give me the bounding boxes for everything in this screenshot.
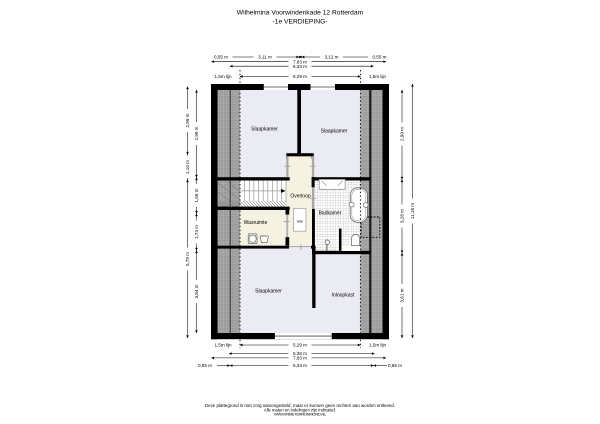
svg-text:1,58 m: 1,58 m <box>194 188 199 202</box>
svg-text:6,33 m: 6,33 m <box>293 363 307 368</box>
svg-text:WWW.INMETERRIJNMOND.NL: WWW.INMETERRIJNMOND.NL <box>274 412 327 417</box>
svg-text:Wilhelmina Voorwindenkade 12 R: Wilhelmina Voorwindenkade 12 Rotterdam <box>237 10 364 17</box>
svg-text:vide: vide <box>297 219 303 223</box>
svg-text:Slaapkamer: Slaapkamer <box>321 128 348 134</box>
svg-text:0,55 m: 0,55 m <box>372 55 386 60</box>
svg-text:2,99 m: 2,99 m <box>194 126 199 140</box>
svg-text:1,74 m: 1,74 m <box>194 225 199 239</box>
svg-text:2,99 m: 2,99 m <box>185 113 190 127</box>
svg-text:Badkamer: Badkamer <box>319 211 342 217</box>
svg-text:5,29 m: 5,29 m <box>293 343 307 348</box>
svg-text:0,85 m: 0,85 m <box>198 363 212 368</box>
svg-text:2,99 m: 2,99 m <box>400 127 405 141</box>
svg-text:11,16 m: 11,16 m <box>410 203 415 219</box>
svg-text:Wasruimte: Wasruimte <box>244 220 268 226</box>
svg-text:3,61 m: 3,61 m <box>400 288 405 302</box>
svg-text:Overloop: Overloop <box>290 194 311 200</box>
svg-text:Slaapkamer: Slaapkamer <box>251 127 278 133</box>
svg-text:1,5m lijn: 1,5m lijn <box>214 74 232 79</box>
svg-text:Inloopkast: Inloopkast <box>332 292 355 298</box>
svg-text:7,83 m: 7,83 m <box>293 356 307 361</box>
svg-text:0,85 m: 0,85 m <box>388 363 402 368</box>
svg-text:3,28 m: 3,28 m <box>400 209 405 223</box>
svg-text:0,55 m: 0,55 m <box>214 55 228 60</box>
svg-text:3,11 m: 3,11 m <box>258 55 272 60</box>
svg-text:5,79 m: 5,79 m <box>185 252 190 266</box>
svg-text:3,84 m: 3,84 m <box>194 284 199 298</box>
svg-text:3,12 m: 3,12 m <box>324 55 338 60</box>
svg-text:6,33 m: 6,33 m <box>293 64 307 69</box>
svg-text:1,5m lijn: 1,5m lijn <box>214 343 232 348</box>
svg-text:1,10 m: 1,10 m <box>185 160 190 174</box>
svg-text:1,5m lijn: 1,5m lijn <box>369 343 387 348</box>
svg-text:-1e VERDIEPING-: -1e VERDIEPING- <box>273 18 328 25</box>
svg-text:5,29 m: 5,29 m <box>293 74 307 79</box>
svg-text:1,5m lijn: 1,5m lijn <box>369 74 387 79</box>
svg-text:Slaapkamer: Slaapkamer <box>255 288 282 294</box>
